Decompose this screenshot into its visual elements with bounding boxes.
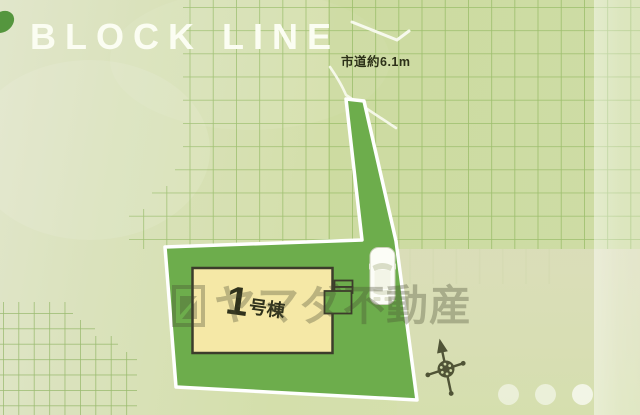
carousel-dot[interactable] bbox=[535, 384, 556, 405]
leaf-blob-icon bbox=[0, 6, 18, 37]
grid-paper-bottom-left bbox=[0, 302, 137, 415]
block-line-plan: BLOCK LINE 市道約6.1m 1 号棟 ヤマダ不動産 bbox=[0, 0, 640, 415]
site-plan-drawing bbox=[0, 0, 640, 415]
road-width-label: 市道約6.1m bbox=[341, 51, 411, 70]
carousel-dot[interactable] bbox=[498, 384, 519, 405]
page-title: BLOCK LINE bbox=[30, 16, 340, 58]
right-light-band bbox=[594, 0, 640, 415]
building-number-suffix: 号棟 bbox=[247, 293, 286, 324]
car-top-view-icon bbox=[369, 248, 396, 305]
carousel-dots bbox=[498, 384, 593, 405]
building-number-label: 1 号棟 bbox=[224, 283, 287, 325]
carousel-dot[interactable] bbox=[572, 384, 593, 405]
